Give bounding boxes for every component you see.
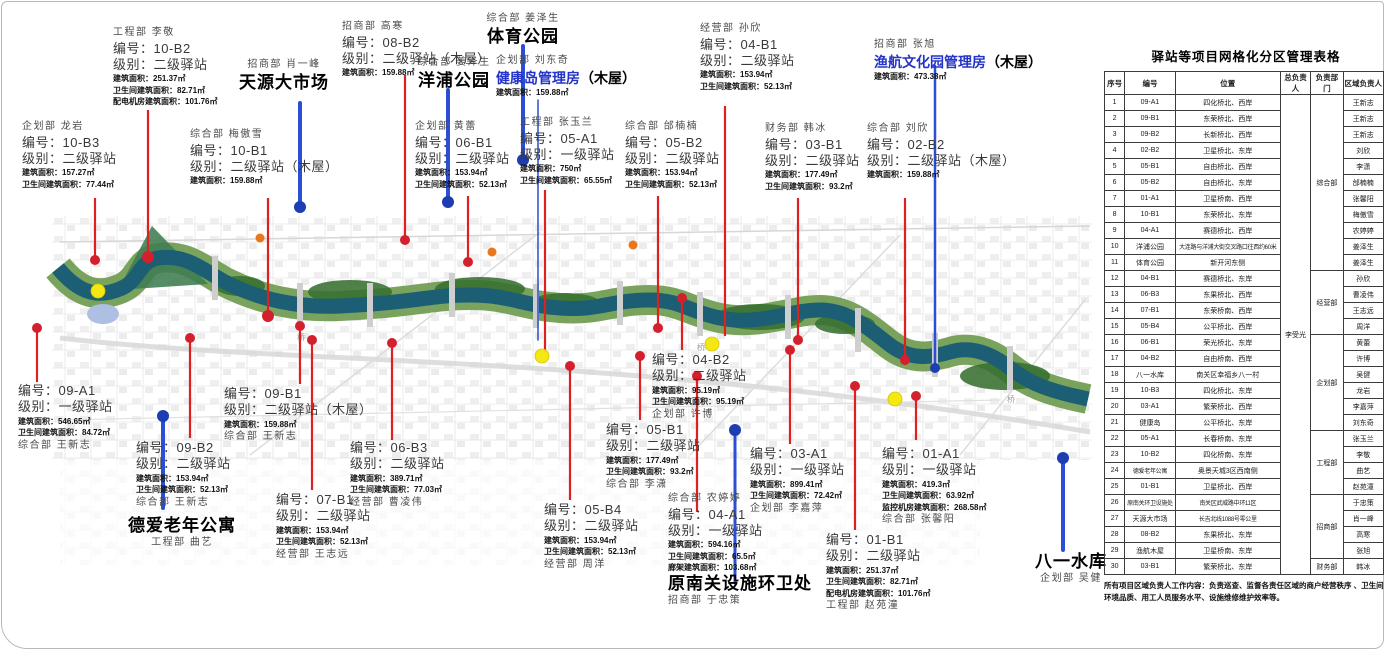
callout-line-detail: 监控机房建筑面积：268.58㎡: [882, 502, 986, 514]
table-cell: 1: [1105, 95, 1125, 111]
callout-line-dept: 招商部 张旭: [874, 39, 1042, 52]
callout-line-detail: 建筑面积：750㎡: [520, 163, 615, 175]
table-row: 2205-A1长春桥南、东岸工程部张玉兰: [1105, 431, 1384, 447]
station-callout-09b2: 编号：09-B2级别：二级驿站建筑面积：153.94㎡卫生间建筑面积：52.13…: [136, 440, 231, 510]
table-cell: 11: [1105, 255, 1125, 271]
table-cell: 18: [1105, 367, 1125, 383]
callout-line-detail: 卫生间建筑面积：72.42㎡: [750, 490, 845, 502]
table-cell: 肖一峰: [1343, 511, 1383, 527]
table-cell: 东荣桥南、西岸: [1175, 303, 1280, 319]
callout-line-dept: 企划部 黄蕾: [415, 121, 510, 134]
table-cell: 洋浦公园: [1125, 239, 1176, 255]
table-cell: 14: [1105, 303, 1125, 319]
management-table: 序号编号位置总负责人负责部门区域负责人 109-A1四化桥北、西岸李受光综合部王…: [1104, 71, 1384, 575]
table-cell: 05-B2: [1125, 175, 1176, 191]
table-cell: 13: [1105, 287, 1125, 303]
table-header-row: 序号编号位置总负责人负责部门区域负责人: [1105, 72, 1384, 95]
callout-line-detail: 卫生间建筑面积：82.71㎡: [826, 576, 930, 588]
callout-line-detail: 廊架建筑面积：103.68㎡: [668, 562, 812, 574]
table-cell: 刘欣: [1343, 143, 1383, 159]
callout-line-dept: 综合部 王新志: [18, 440, 113, 453]
table-cell: 03-B1: [1125, 559, 1176, 575]
table-cell: 王新志: [1343, 127, 1383, 143]
callout-line-level: 级别：二级驿站: [415, 151, 510, 167]
callout-line-detail: 卫生间建筑面积：93.2㎡: [606, 466, 701, 478]
table-cell: 9: [1105, 223, 1125, 239]
callout-line-detail: 卫生间建筑面积：52.13㎡: [544, 546, 639, 558]
table-cell: 28: [1105, 527, 1125, 543]
callout-line-code: 编号：10-B1: [190, 143, 339, 159]
table-row: 1606-B1荣光桥北、东岸企划部黄蕾: [1105, 335, 1384, 351]
table-cell: 10: [1105, 239, 1125, 255]
table-cell: 李敬: [1343, 447, 1383, 463]
table-cell: 长春桥南、东岸: [1175, 431, 1280, 447]
station-callout-10b2: 工程部 李敬编号：10-B2级别：二级驿站建筑面积：251.37㎡卫生间建筑面积…: [113, 26, 217, 108]
callout-line-dept: 综合部 姜泽生: [404, 57, 504, 70]
callout-line-detail: 建筑面积：594.16㎡: [668, 539, 812, 551]
callout-line-code: 编号：01-A1: [882, 446, 986, 462]
table-cell: 自由桥北、东岸: [1175, 175, 1280, 191]
table-cell: 农婷婷: [1343, 223, 1383, 239]
callout-line-dept: 企划部 许博: [652, 409, 747, 422]
callout-line-code: 编号：04-B1: [700, 37, 795, 53]
management-table-panel: 驿站等项目网格化分区管理表格 序号编号位置总负责人负责部门区域负责人 109-A…: [1104, 46, 1388, 603]
svg-text:桥: 桥: [1007, 394, 1015, 404]
callout-line-dept: 综合部 李潇: [606, 479, 701, 492]
callout-line-detail: 卫生间建筑面积：63.92㎡: [882, 490, 986, 502]
callout-line-dept: 企划部 李嘉萍: [750, 503, 845, 516]
station-callout-10b3: 企划部 龙岩编号：10-B3级别：二级驿站建筑面积：157.27㎡卫生间建筑面积…: [22, 120, 117, 190]
table-cell: 许博: [1343, 351, 1383, 367]
table-row: 26原南关环卫设施处南关区武威路中环11区招商部于忠策: [1105, 495, 1384, 511]
callout-line-detail: 建筑面积：159.88㎡: [496, 87, 636, 99]
table-cell: 07-B1: [1125, 303, 1176, 319]
callout-line-detail: 卫生间建筑面积：95.19㎡: [652, 396, 747, 408]
svg-text:桥: 桥: [697, 342, 705, 352]
table-cell: 赛德桥北、西岸: [1175, 223, 1280, 239]
callout-line-dept: 招商部 肖一峰: [228, 59, 340, 72]
screenshot-root: 桥 桥 桥: [0, 0, 1388, 656]
station-callout-01b1: 编号：01-B1级别：二级驿站建筑面积：251.37㎡卫生间建筑面积：82.71…: [826, 532, 930, 614]
table-cell: 08-B2: [1125, 527, 1176, 543]
table-cell: 15: [1105, 319, 1125, 335]
callout-line-detail: 建筑面积：153.94㎡: [625, 167, 720, 179]
column-header: 位置: [1175, 72, 1280, 95]
table-cell: 12: [1105, 271, 1125, 287]
station-callout-05b2: 综合部 邰楠楠编号：05-B2级别：二级驿站建筑面积：153.94㎡卫生间建筑面…: [625, 120, 720, 190]
table-cell: 王志远: [1343, 303, 1383, 319]
callout-line-level: 级别：一级驿站: [750, 462, 845, 478]
callout-line-code: 编号：05-B1: [606, 422, 701, 438]
table-cell: 24: [1105, 463, 1125, 479]
table-cell: 张玉兰: [1343, 431, 1383, 447]
table-cell: 赵苑潼: [1343, 479, 1383, 495]
dept-group-cell: 招商部: [1311, 495, 1343, 559]
callout-line-name: 德爱老年公寓: [112, 516, 252, 536]
table-cell: 东荣桥北、东岸: [1175, 207, 1280, 223]
callout-line-dept: 综合部 姜泽生: [468, 13, 578, 26]
table-cell: 20: [1105, 399, 1125, 415]
table-cell: 四化桥北、西岸: [1175, 95, 1280, 111]
table-cell: 姜泽生: [1343, 255, 1383, 271]
callout-line-detail: 建筑面积：899.41㎡: [750, 479, 845, 491]
table-row: 1204-B1赛德桥北、东岸经营部孙欣: [1105, 271, 1384, 287]
station-callout-yangpu: 综合部 姜泽生洋浦公园: [404, 56, 504, 91]
table-cell: 于忠策: [1343, 495, 1383, 511]
callout-line-level: 级别：二级驿站（木屋）: [224, 402, 373, 418]
callout-line-dept: 综合部 邰楠楠: [625, 121, 720, 134]
table-cell: 19: [1105, 383, 1125, 399]
callout-line-code: 编号：10-B3: [22, 135, 117, 151]
table-cell: 23: [1105, 447, 1125, 463]
table-cell: 繁荣桥北、西岸: [1175, 399, 1280, 415]
table-cell: 6: [1105, 175, 1125, 191]
table-cell: 26: [1105, 495, 1125, 511]
callout-line-detail: 卫生间建筑面积：82.71㎡: [113, 85, 217, 97]
callout-line-dept: 财务部 韩冰: [765, 123, 860, 136]
table-cell: 4: [1105, 143, 1125, 159]
table-cell: 长吉北线1088号零公里: [1175, 511, 1280, 527]
callout-line-code: 编号：05-B4: [544, 502, 639, 518]
callout-line-detail: 建筑面积：153.94㎡: [700, 69, 795, 81]
callout-line-code: 编号：05-B2: [625, 135, 720, 151]
callout-line-detail: 建筑面积：159.88㎡: [224, 419, 373, 431]
table-cell: 南关区幸福乡八一村: [1175, 367, 1280, 383]
table-cell: 长新桥北、西岸: [1175, 127, 1280, 143]
callout-line-detail: 建筑面积：153.94㎡: [544, 535, 639, 547]
callout-line-dept: 经营部 曹凌伟: [350, 497, 445, 510]
callout-line-nameblue: 渔航文化园管理房（木屋）: [874, 53, 1042, 71]
station-callout-09a1: 编号：09-A1级别：一级驿站建筑面积：546.65㎡卫生间建筑面积：84.72…: [18, 383, 113, 453]
callout-line-code: 编号：10-B2: [113, 41, 217, 57]
callout-line-level: 级别：二级驿站: [136, 456, 231, 472]
table-body: 109-A1四化桥北、西岸李受光综合部王新志209-B1东荣桥北、西岸王新志30…: [1105, 95, 1384, 575]
table-cell: 卫星桥北、东岸: [1175, 143, 1280, 159]
table-cell: 04-A1: [1125, 223, 1176, 239]
table-cell: 卫星桥北、西岸: [1175, 479, 1280, 495]
table-row: 3003-B1繁荣桥北、东岸财务部韩冰: [1105, 559, 1384, 575]
table-cell: 05-B1: [1125, 159, 1176, 175]
station-callout-04b1: 经营部 孙欣编号：04-B1级别：二级驿站建筑面积：153.94㎡卫生间建筑面积…: [700, 22, 795, 92]
callout-line-name: 洋浦公园: [404, 71, 504, 91]
table-cell: 刘东奇: [1343, 415, 1383, 431]
station-callout-09b1: 编号：09-B1级别：二级驿站（木屋）建筑面积：159.88㎡综合部 王新志: [224, 386, 373, 445]
table-cell: 吴健: [1343, 367, 1383, 383]
callout-line-detail: 卫生间建筑面积：65.55㎡: [520, 175, 615, 187]
table-cell: 奥景天城3区西南侧: [1175, 463, 1280, 479]
callout-line-dept: 综合部 刘欣: [867, 123, 1016, 136]
table-cell: 张馨阳: [1343, 191, 1383, 207]
station-callout-deai: 德爱老年公寓工程部 曲艺: [112, 516, 252, 551]
callout-line-detail: 卫生间建筑面积：52.13㎡: [276, 536, 371, 548]
callout-line-dept: 综合部 张馨阳: [882, 514, 986, 527]
callout-name-suffix: （木屋）: [580, 70, 636, 86]
dept-group-cell: 财务部: [1311, 559, 1343, 575]
callout-line-code: 编号：05-A1: [520, 131, 615, 147]
station-callout-03b1: 财务部 韩冰编号：03-B1级别：二级驿站建筑面积：177.49㎡卫生间建筑面积…: [765, 122, 860, 192]
table-cell: 7: [1105, 191, 1125, 207]
callout-name-suffix: （木屋）: [986, 54, 1042, 70]
callout-line-dept: 工程部 赵苑潼: [826, 600, 930, 613]
callout-line-detail: 建筑面积：177.49㎡: [765, 169, 860, 181]
table-cell: 自由桥南、西岸: [1175, 351, 1280, 367]
callout-line-detail: 配电机房建筑面积：101.76㎡: [113, 96, 217, 108]
table-cell: 荣光桥北、东岸: [1175, 335, 1280, 351]
callout-line-dept: 经营部 王志远: [276, 549, 371, 562]
callout-line-detail: 卫生间建筑面积：84.72㎡: [18, 427, 113, 439]
column-header: 区域负责人: [1343, 72, 1383, 95]
table-footnote: 所有项目区域负责人工作内容：负责巡查、监督各责任区域的商户经营秩序 、卫生间环境…: [1104, 580, 1384, 603]
station-callout-10b1: 综合部 梅傲雪编号：10-B1级别：二级驿站（木屋）建筑面积：159.88㎡: [190, 128, 339, 187]
station-callout-tianyuan: 招商部 肖一峰天源大市场: [228, 58, 340, 93]
lake: [87, 304, 119, 324]
callout-line-dept: 企划部 刘东奇: [496, 55, 636, 68]
callout-line-nameblue: 健康岛管理房（木屋）: [496, 69, 636, 87]
table-cell: 5: [1105, 159, 1125, 175]
callout-line-detail: 建筑面积：546.65㎡: [18, 416, 113, 428]
table-row: 109-A1四化桥北、西岸李受光综合部王新志: [1105, 95, 1384, 111]
callout-line-code: 编号：04-B2: [652, 352, 747, 368]
table-cell: 四化桥南、东岸: [1175, 447, 1280, 463]
table-cell: 大连路与洋浦大街交叉路口往西约60米: [1175, 239, 1280, 255]
station-callout-05b4: 编号：05-B4级别：二级驿站建筑面积：153.94㎡卫生间建筑面积：52.13…: [544, 502, 639, 572]
callout-line-detail: 建筑面积：251.37㎡: [826, 565, 930, 577]
table-cell: 王新志: [1343, 111, 1383, 127]
callout-line-detail: 建筑面积：153.94㎡: [276, 525, 371, 537]
station-callout-05a1: 工程部 张玉兰编号：05-A1级别：一级驿站建筑面积：750㎡卫生间建筑面积：6…: [520, 116, 615, 186]
table-cell: 张旭: [1343, 543, 1383, 559]
overall-manager-cell: 李受光: [1280, 95, 1310, 575]
table-cell: 21: [1105, 415, 1125, 431]
table-cell: 3: [1105, 127, 1125, 143]
callout-line-detail: 建筑面积：95.19㎡: [652, 385, 747, 397]
callout-line-dept: 工程部 李敬: [113, 27, 217, 40]
table-cell: 06-B3: [1125, 287, 1176, 303]
callout-line-level: 级别：一级驿站: [520, 147, 615, 163]
column-header: 编号: [1125, 72, 1176, 95]
station-callout-jiankang: 企划部 刘东奇健康岛管理房（木屋）建筑面积：159.88㎡: [496, 54, 636, 98]
dept-group-cell: 综合部: [1311, 95, 1343, 271]
table-cell: 繁荣桥北、东岸: [1175, 559, 1280, 575]
callout-line-code: 编号：03-B1: [765, 137, 860, 153]
callout-line-level: 级别：二级驿站: [606, 438, 701, 454]
table-cell: 八一水库: [1125, 367, 1176, 383]
table-cell: 孙欣: [1343, 271, 1383, 287]
table-cell: 09-B1: [1125, 111, 1176, 127]
dept-group-cell: 经营部: [1311, 271, 1343, 335]
table-cell: 25: [1105, 479, 1125, 495]
callout-line-level: 级别：二级驿站: [350, 456, 445, 472]
table-cell: 16: [1105, 335, 1125, 351]
callout-line-detail: 配电机房建筑面积：101.76㎡: [826, 588, 930, 600]
table-cell: 李潇: [1343, 159, 1383, 175]
callout-line-detail: 卫生间建筑面积：52.13㎡: [136, 484, 231, 496]
table-cell: 29: [1105, 543, 1125, 559]
callout-line-code: 编号：09-A1: [18, 383, 113, 399]
callout-line-code: 编号：02-B2: [867, 137, 1016, 153]
callout-line-level: 级别：二级驿站（木屋）: [867, 153, 1016, 169]
callout-line-code: 编号：01-B1: [826, 532, 930, 548]
station-callout-06b1: 企划部 黄蕾编号：06-B1级别：二级驿站建筑面积：153.94㎡卫生间建筑面积…: [415, 120, 510, 190]
dept-group-cell: 工程部: [1311, 431, 1343, 495]
table-cell: 曲艺: [1343, 463, 1383, 479]
callout-line-name: 原南关设施环卫处: [668, 574, 812, 594]
callout-line-level: 级别：二级驿站: [700, 53, 795, 69]
table-cell: 04-B2: [1125, 351, 1176, 367]
table-cell: 09-B2: [1125, 127, 1176, 143]
table-cell: 03-A1: [1125, 399, 1176, 415]
callout-line-detail: 建筑面积：177.49㎡: [606, 455, 701, 467]
callout-line-detail: 卫生间建筑面积：52.13㎡: [415, 179, 510, 191]
table-cell: 渔航木屋: [1125, 543, 1176, 559]
table-cell: 姜泽生: [1343, 239, 1383, 255]
callout-line-detail: 卫生间建筑面积：77.03㎡: [350, 484, 445, 496]
callout-line-level: 级别：二级驿站: [765, 153, 860, 169]
table-cell: 高寒: [1343, 527, 1383, 543]
table-cell: 10-B2: [1125, 447, 1176, 463]
table-cell: 健康岛: [1125, 415, 1176, 431]
station-callout-03a1: 编号：03-A1级别：一级驿站建筑面积：899.41㎡卫生间建筑面积：72.42…: [750, 446, 845, 516]
table-cell: 韩冰: [1343, 559, 1383, 575]
table-cell: 东荣桥北、西岸: [1175, 111, 1280, 127]
table-title: 驿站等项目网格化分区管理表格: [1104, 46, 1388, 65]
callout-line-dept: 企划部 龙岩: [22, 121, 117, 134]
callout-line-dept: 工程部 曲艺: [112, 537, 252, 550]
table-cell: 05-A1: [1125, 431, 1176, 447]
table-cell: 天源大市场: [1125, 511, 1176, 527]
table-cell: 自由桥北、西岸: [1175, 159, 1280, 175]
table-cell: 东果桥北、西岸: [1175, 287, 1280, 303]
table-cell: 10-B3: [1125, 383, 1176, 399]
station-callout-01a1: 编号：01-A1级别：一级驿站建筑面积：419.3㎡卫生间建筑面积：63.92㎡…: [882, 446, 986, 528]
callout-line-detail: 卫生间建筑面积：52.13㎡: [625, 179, 720, 191]
callout-line-name: 天源大市场: [228, 73, 340, 93]
table-cell: 17: [1105, 351, 1125, 367]
callout-line-detail: 建筑面积：419.3㎡: [882, 479, 986, 491]
callout-line-detail: 卫生间建筑面积：52.13㎡: [700, 81, 795, 93]
station-callout-04b2: 编号：04-B2级别：二级驿站建筑面积：95.19㎡卫生间建筑面积：95.19㎡…: [652, 352, 747, 422]
table-cell: 周洋: [1343, 319, 1383, 335]
table-cell: 22: [1105, 431, 1125, 447]
table-cell: 龙岩: [1343, 383, 1383, 399]
table-cell: 27: [1105, 511, 1125, 527]
table-cell: 新开河东侧: [1175, 255, 1280, 271]
callout-line-code: 编号：06-B3: [350, 440, 445, 456]
table-cell: 卫星桥南、西岸: [1175, 191, 1280, 207]
callout-line-level: 级别：二级驿站: [113, 57, 217, 73]
table-cell: 邰楠楠: [1343, 175, 1383, 191]
station-callout-05b1: 编号：05-B1级别：二级驿站建筑面积：177.49㎡卫生间建筑面积：93.2㎡…: [606, 422, 701, 492]
table-cell: 东果桥北、东岸: [1175, 527, 1280, 543]
callout-line-detail: 建筑面积：389.71㎡: [350, 473, 445, 485]
station-callout-06b3: 编号：06-B3级别：二级驿站建筑面积：389.71㎡卫生间建筑面积：77.03…: [350, 440, 445, 510]
callout-line-dept: 工程部 张玉兰: [520, 117, 615, 130]
callout-line-level: 级别：一级驿站: [882, 462, 986, 478]
table-cell: 2: [1105, 111, 1125, 127]
callout-line-detail: 建筑面积：159.88㎡: [867, 169, 1016, 181]
callout-line-dept: 经营部 周洋: [544, 559, 639, 572]
table-cell: 原南关环卫设施处: [1125, 495, 1176, 511]
callout-line-level: 级别：二级驿站（木屋）: [190, 159, 339, 175]
table-cell: 公平桥北、西岸: [1175, 319, 1280, 335]
callout-line-detail: 建筑面积：153.94㎡: [136, 473, 231, 485]
callout-line-level: 级别：二级驿站: [625, 151, 720, 167]
callout-line-code: 编号：06-B1: [415, 135, 510, 151]
table-cell: 赛德桥北、东岸: [1175, 271, 1280, 287]
callout-line-name: 体育公园: [468, 27, 578, 47]
table-cell: 04-B1: [1125, 271, 1176, 287]
callout-line-level: 级别：二级驿站: [826, 548, 930, 564]
table-cell: 30: [1105, 559, 1125, 575]
station-callout-02b2: 综合部 刘欣编号：02-B2级别：二级驿站（木屋）建筑面积：159.88㎡: [867, 122, 1016, 181]
callout-line-level: 级别：一级驿站: [668, 523, 812, 539]
table-cell: 德爱老年公寓: [1125, 463, 1176, 479]
station-callout-tiyu: 综合部 姜泽生体育公园: [468, 12, 578, 47]
callout-line-level: 级别：一级驿站: [18, 399, 113, 415]
table-cell: 06-B1: [1125, 335, 1176, 351]
table-cell: 公平桥北、东岸: [1175, 415, 1280, 431]
table-cell: 09-A1: [1125, 95, 1176, 111]
table-cell: 8: [1105, 207, 1125, 223]
callout-line-detail: 卫生间建筑面积：77.44㎡: [22, 179, 117, 191]
callout-line-level: 级别：二级驿站: [544, 518, 639, 534]
callout-line-level: 级别：二级驿站: [652, 368, 747, 384]
table-cell: 01-B1: [1125, 479, 1176, 495]
callout-line-dept: 经营部 孙欣: [700, 23, 795, 36]
column-header: 负责部门: [1311, 72, 1343, 95]
callout-line-level: 级别：二级驿站: [276, 508, 371, 524]
callout-line-detail: 建筑面积：473.38㎡: [874, 71, 1042, 83]
table-cell: 02-B2: [1125, 143, 1176, 159]
table-cell: 王新志: [1343, 95, 1383, 111]
table-cell: 10-B1: [1125, 207, 1176, 223]
callout-line-dept: 招商部 于忠策: [668, 595, 812, 608]
station-callout-yuhang: 招商部 张旭渔航文化园管理房（木屋）建筑面积：473.38㎡: [874, 38, 1042, 82]
callout-line-code: 编号：09-B1: [224, 386, 373, 402]
table-cell: 曹凌伟: [1343, 287, 1383, 303]
column-header: 总负责人: [1280, 72, 1310, 95]
table-cell: 李嘉萍: [1343, 399, 1383, 415]
callout-line-code: 编号：03-A1: [750, 446, 845, 462]
callout-line-detail: 建筑面积：251.37㎡: [113, 73, 217, 85]
callout-line-detail: 卫生间建筑面积：65.5㎡: [668, 551, 812, 563]
callout-line-detail: 建筑面积：157.27㎡: [22, 167, 117, 179]
dept-group-cell: 企划部: [1311, 335, 1343, 431]
table-cell: 梅傲雪: [1343, 207, 1383, 223]
callout-line-code: 编号：09-B2: [136, 440, 231, 456]
table-cell: 卫星桥南、东岸: [1175, 543, 1280, 559]
table-cell: 体育公园: [1125, 255, 1176, 271]
table-cell: 黄蕾: [1343, 335, 1383, 351]
table-cell: 01-A1: [1125, 191, 1176, 207]
callout-line-level: 级别：二级驿站: [22, 151, 117, 167]
table-cell: 四化桥北、东岸: [1175, 383, 1280, 399]
callout-line-dept: 综合部 王新志: [136, 497, 231, 510]
table-cell: 05-B4: [1125, 319, 1176, 335]
callout-line-detail: 卫生间建筑面积：93.2㎡: [765, 181, 860, 193]
table-cell: 南关区武威路中环11区: [1175, 495, 1280, 511]
callout-line-detail: 建筑面积：159.88㎡: [190, 175, 339, 187]
callout-line-dept: 综合部 梅傲雪: [190, 129, 339, 142]
column-header: 序号: [1105, 72, 1125, 95]
callout-line-detail: 建筑面积：153.94㎡: [415, 167, 510, 179]
